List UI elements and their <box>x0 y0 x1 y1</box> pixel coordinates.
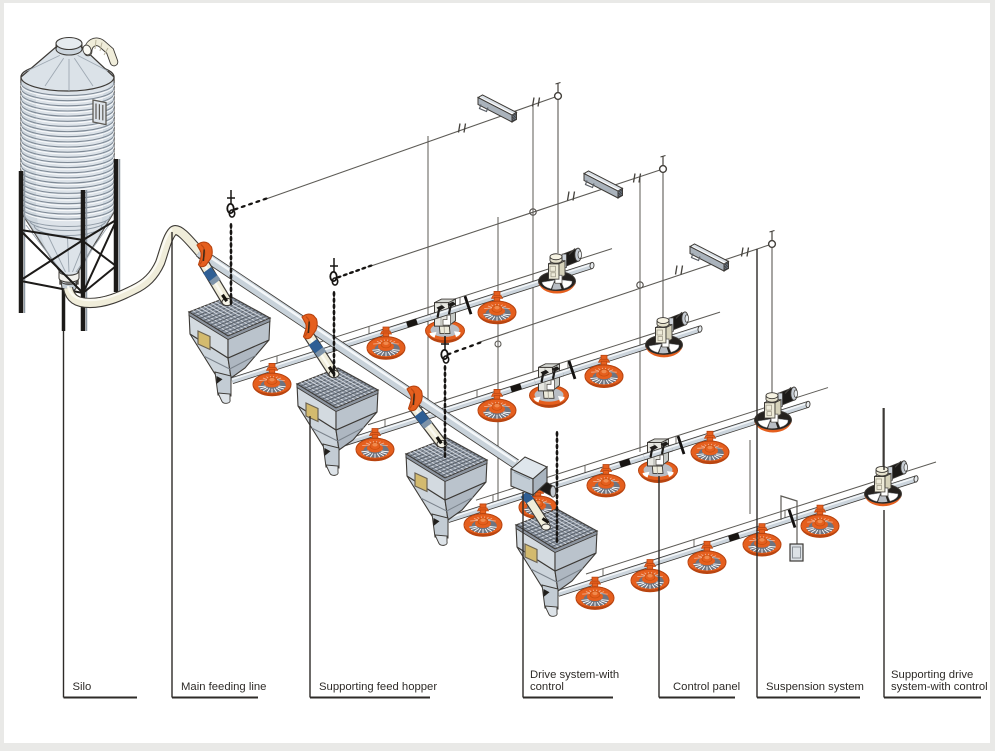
svg-text:control: control <box>530 681 564 693</box>
svg-text:Silo: Silo <box>73 681 92 693</box>
svg-text:Drive system-with: Drive system-with <box>530 669 619 681</box>
svg-text:system-with control: system-with control <box>891 681 988 693</box>
svg-text:Supporting drive: Supporting drive <box>891 669 973 681</box>
svg-text:Main feeding line: Main feeding line <box>181 681 266 693</box>
svg-text:Suspension system: Suspension system <box>766 681 864 693</box>
svg-text:Supporting feed hopper: Supporting feed hopper <box>319 681 437 693</box>
svg-text:Control panel: Control panel <box>673 681 740 693</box>
